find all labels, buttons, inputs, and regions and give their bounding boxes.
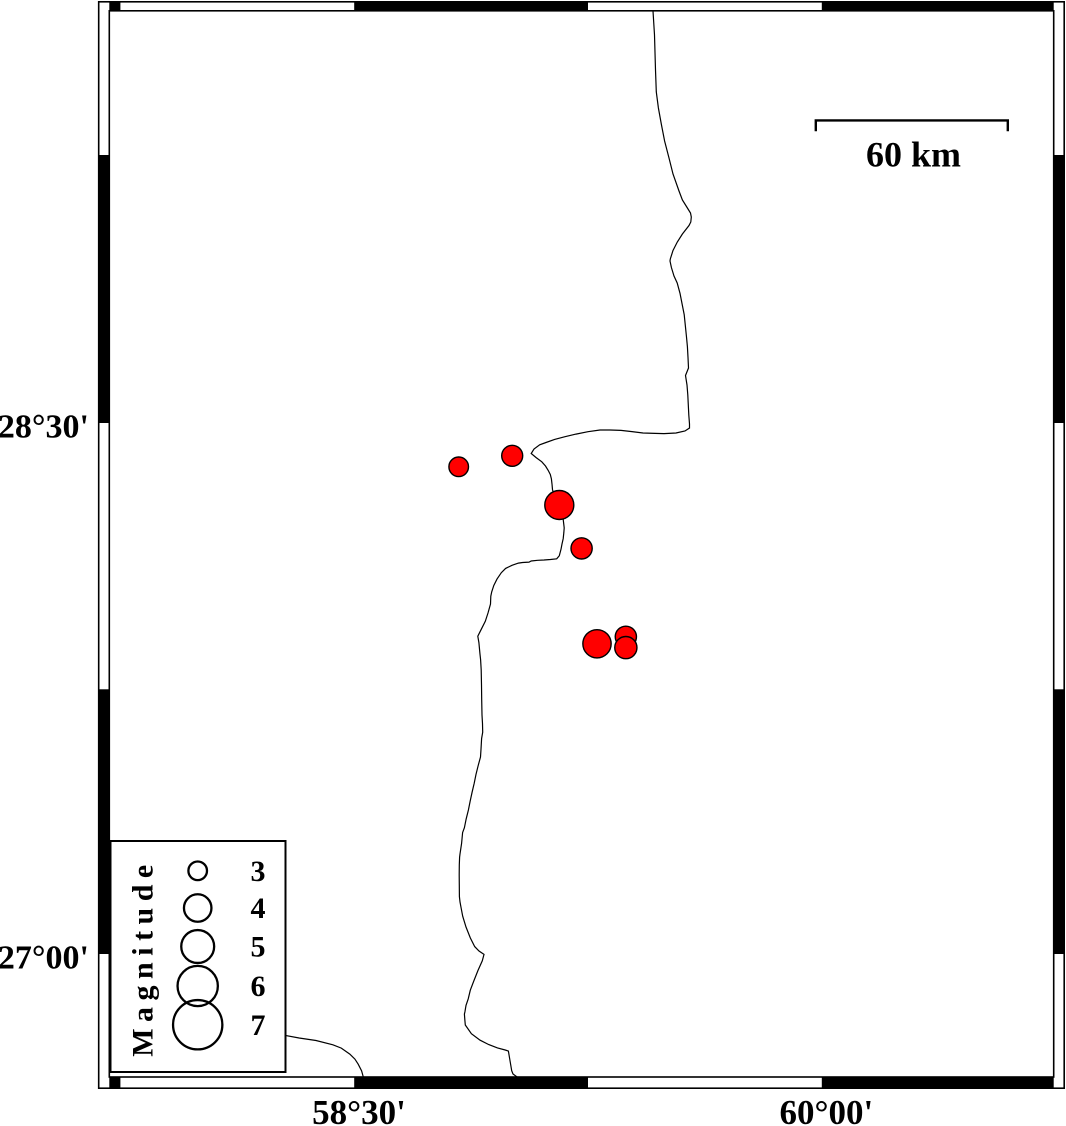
svg-text:27°00': 27°00'	[0, 939, 89, 976]
svg-text:5: 5	[251, 931, 266, 964]
svg-text:3: 3	[251, 855, 266, 888]
svg-text:28°30': 28°30'	[0, 409, 89, 446]
svg-text:60°00': 60°00'	[780, 1093, 874, 1126]
svg-text:4: 4	[251, 892, 266, 925]
svg-text:60 km: 60 km	[866, 134, 961, 174]
svg-text:7: 7	[251, 1009, 266, 1042]
svg-text:58°30': 58°30'	[312, 1093, 406, 1126]
svg-text:6: 6	[251, 970, 266, 1003]
svg-text:Magnitude: Magnitude	[126, 858, 159, 1057]
